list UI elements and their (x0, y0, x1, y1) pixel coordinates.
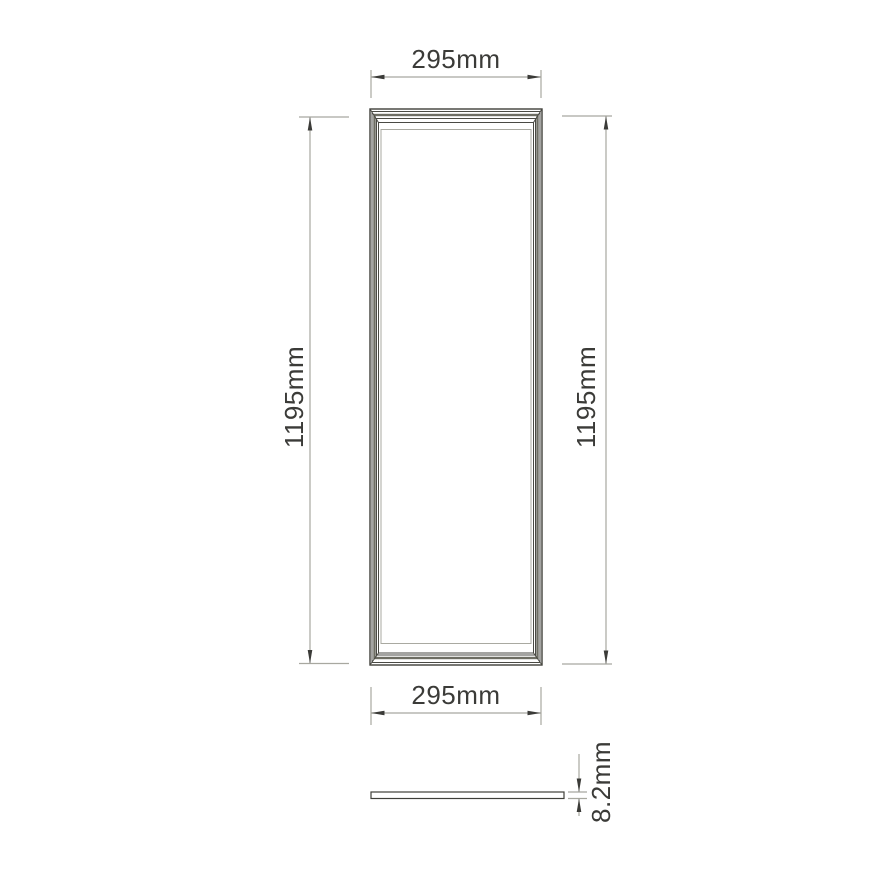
dimension-width-top: 295mm (371, 44, 541, 98)
dimension-height-right: 1195mm (562, 116, 612, 664)
arrowhead-top (604, 116, 609, 130)
drawing-svg: 295mm 1195mm 1195mm 295mm (0, 0, 887, 887)
panel-light-surface-edge (381, 130, 531, 644)
dimension-drawing: 295mm 1195mm 1195mm 295mm (0, 0, 887, 887)
dimension-label-thickness: 8.2mm (586, 741, 616, 823)
front-view (370, 109, 542, 665)
arrowhead-top (308, 117, 313, 131)
arrowhead-left (371, 75, 385, 80)
dimension-label-width-bottom: 295mm (411, 680, 500, 710)
arrowhead-bottom (604, 651, 609, 665)
dimension-height-left: 1195mm (279, 117, 349, 664)
panel-frame-step-4 (379, 123, 534, 654)
arrowhead-down (577, 779, 582, 793)
dimension-label-height-right: 1195mm (571, 346, 601, 448)
panel-frame-step-1 (372, 112, 540, 663)
arrowhead-up (577, 799, 582, 813)
side-view: 8.2mm (371, 741, 616, 823)
arrowhead-left (371, 711, 385, 716)
panel-outer-frame (370, 109, 542, 665)
dimension-label-height-left: 1195mm (279, 346, 309, 448)
arrowhead-right (528, 711, 542, 716)
dimension-width-bottom: 295mm (371, 680, 541, 725)
arrowhead-right (528, 75, 542, 80)
panel-frame-step-3 (377, 119, 536, 656)
panel-side-profile (371, 792, 564, 799)
dimension-label-width-top: 295mm (411, 44, 500, 74)
panel-frame-step-2 (375, 115, 538, 658)
dimension-thickness: 8.2mm (568, 741, 616, 823)
arrowhead-bottom (308, 650, 313, 664)
